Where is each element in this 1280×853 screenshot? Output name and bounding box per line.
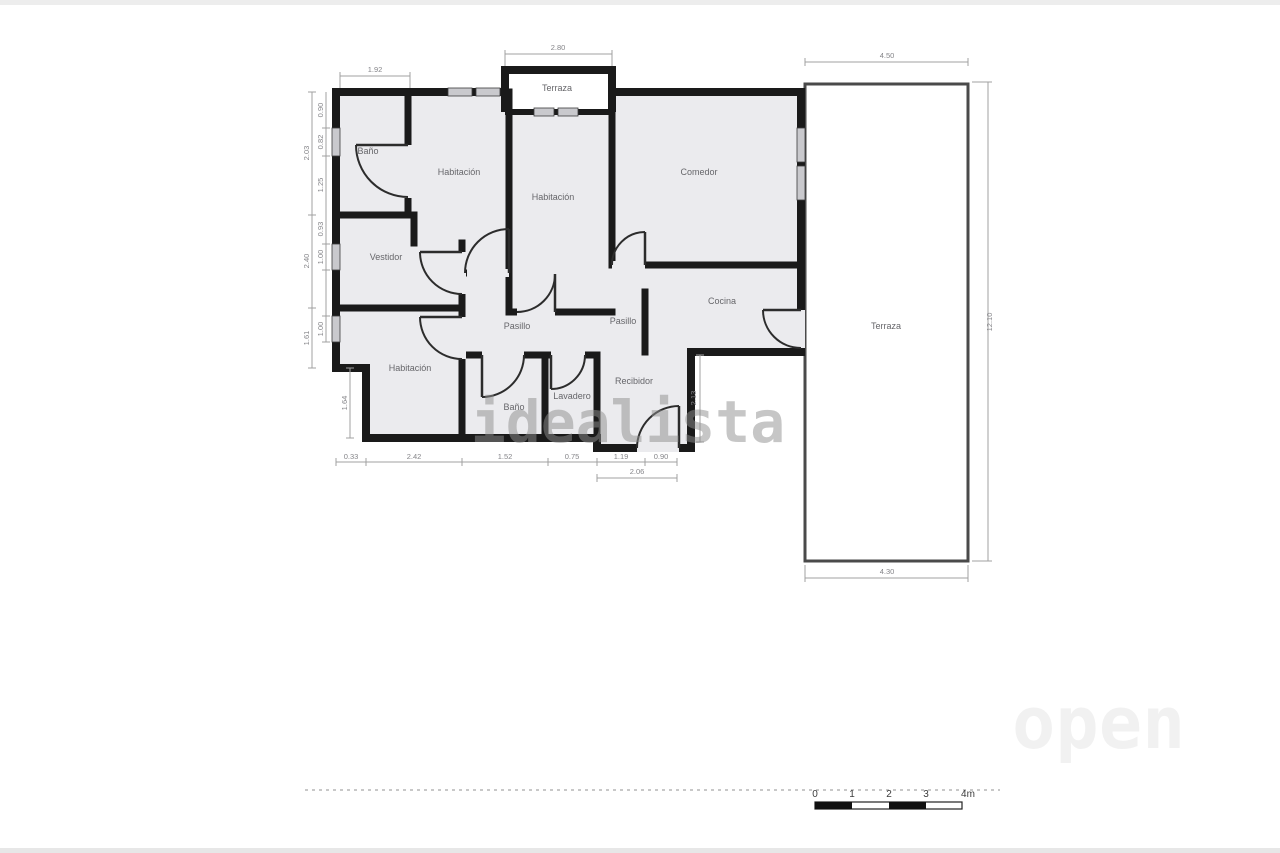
window-habitacion3 bbox=[332, 316, 340, 342]
scale-bar-segment-2 bbox=[889, 802, 926, 809]
dim-top-terrace: 2.80 bbox=[551, 43, 566, 52]
scale-label-1: 1 bbox=[849, 789, 855, 800]
window-habitacion2-b bbox=[558, 108, 578, 116]
dim-bottom-0: 0.33 bbox=[344, 452, 359, 461]
dim-top-left: 1.92 bbox=[368, 65, 383, 74]
bottom-edge-band bbox=[0, 848, 1280, 853]
dim-left-inner-2: 1.25 bbox=[316, 178, 325, 193]
top-edge-band bbox=[0, 0, 1280, 5]
dim-terrace-top: 4.50 bbox=[880, 51, 895, 60]
room-label-pasillo-1: Pasillo bbox=[504, 321, 531, 331]
room-label-bano-1: Baño bbox=[357, 146, 378, 156]
dim-left-outer-2: 1.61 bbox=[302, 331, 311, 346]
window-bano1 bbox=[332, 128, 340, 156]
scale-label-3: 3 bbox=[923, 789, 929, 800]
floor-plan-page: 1.92 2.80 4.50 12.10 4.30 2.03 2.40 1.61… bbox=[0, 0, 1280, 853]
scale-label-2: 2 bbox=[886, 789, 892, 800]
dim-left-outer-1: 2.40 bbox=[302, 254, 311, 269]
dim-bottom-recibidor: 2.06 bbox=[630, 467, 645, 476]
room-label-comedor: Comedor bbox=[680, 167, 717, 177]
watermark-open: open bbox=[1012, 681, 1185, 765]
dim-left-inner-4: 1.00 bbox=[316, 250, 325, 265]
room-label-pasillo-2: Pasillo bbox=[610, 316, 637, 326]
scale-label-4m: 4m bbox=[961, 789, 975, 800]
scale-bar-segment-1 bbox=[815, 802, 852, 809]
room-label-terraza-top: Terraza bbox=[542, 83, 572, 93]
window-comedor-b bbox=[797, 166, 805, 200]
floor-plan: 1.92 2.80 4.50 12.10 4.30 2.03 2.40 1.61… bbox=[0, 0, 1280, 853]
dim-left-step: 1.64 bbox=[340, 396, 349, 411]
room-label-terraza-right: Terraza bbox=[871, 321, 901, 331]
room-label-vestidor: Vestidor bbox=[370, 252, 403, 262]
room-label-habitacion-1: Habitación bbox=[438, 167, 481, 177]
window-vestidor bbox=[332, 244, 340, 270]
room-label-cocina: Cocina bbox=[708, 296, 736, 306]
window-habitacion1-a bbox=[448, 88, 472, 96]
window-comedor-a bbox=[797, 128, 805, 162]
scale-label-0: 0 bbox=[812, 789, 818, 800]
dim-terrace-bottom: 4.30 bbox=[880, 567, 895, 576]
dim-left-inner-3: 0.93 bbox=[316, 222, 325, 237]
watermark-idealista: idealista bbox=[471, 388, 785, 456]
scale-bar: 0 1 2 3 4m bbox=[812, 789, 975, 809]
room-label-habitacion-2: Habitación bbox=[532, 192, 575, 202]
room-label-recibidor: Recibidor bbox=[615, 376, 653, 386]
dim-left-inner-1: 0.82 bbox=[316, 135, 325, 150]
window-habitacion1-b bbox=[476, 88, 500, 96]
room-label-habitacion-3: Habitación bbox=[389, 363, 432, 373]
dim-left-inner-0: 0.90 bbox=[316, 103, 325, 118]
dim-bottom-1: 2.42 bbox=[407, 452, 422, 461]
window-habitacion2-a bbox=[534, 108, 554, 116]
dim-left-inner-5: 1.00 bbox=[316, 322, 325, 337]
dim-terrace-right: 12.10 bbox=[985, 313, 994, 332]
dim-left-outer-0: 2.03 bbox=[302, 146, 311, 161]
